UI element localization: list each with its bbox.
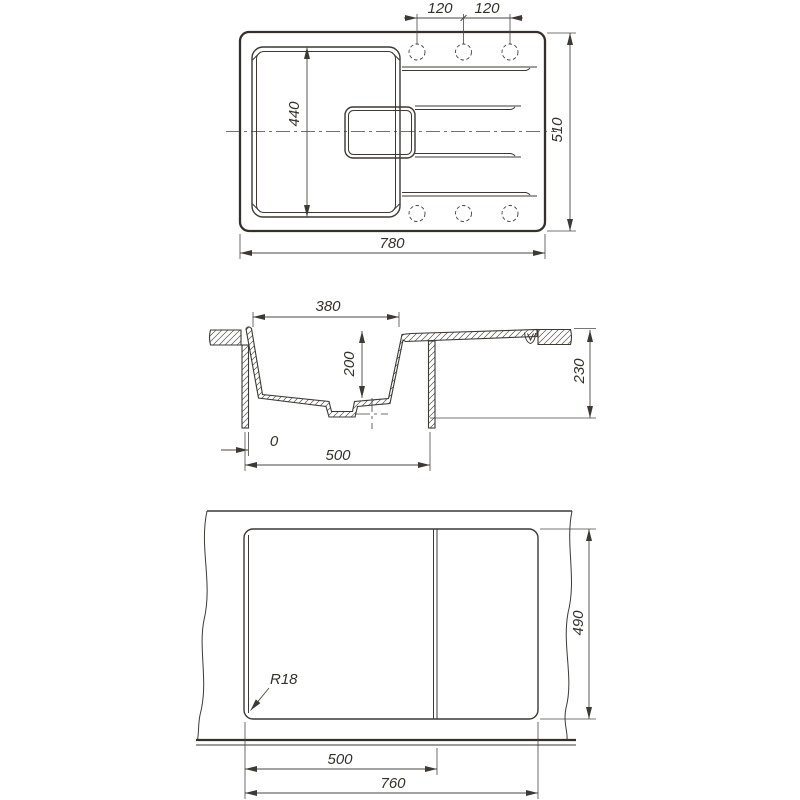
cutout-outline [244, 529, 538, 719]
bowl-rim [252, 47, 400, 217]
dim-total-height-label: 230 [571, 358, 588, 385]
dim-corner-radius: R18 [251, 671, 299, 711]
dim-edge-offset-label: 0 [270, 433, 279, 450]
sink-shell-section [246, 327, 537, 417]
dim-edge-offset: 0 [221, 432, 279, 456]
dim-left-section-width: 500 [245, 722, 437, 799]
dim-cutout-width-label: 760 [380, 775, 406, 792]
dim-bowl-width: 380 [253, 298, 399, 327]
dim-hole-spacing-left-label: 120 [427, 0, 453, 17]
countertop-left [210, 330, 242, 345]
dim-overall-width-label: 780 [379, 235, 405, 252]
dim-hole-spacing: 120 120 [404, 0, 523, 44]
dim-bowl-width-label: 380 [315, 298, 341, 315]
section-view: 380 200 230 0 500 [210, 298, 597, 471]
dim-cutout-depth-label: 490 [570, 610, 587, 636]
dim-bowl-depth-label: 200 [341, 351, 358, 378]
dim-bowl-depth: 200 [341, 331, 362, 398]
cabinet-wall-left [242, 345, 249, 428]
dim-left-section-width-label: 500 [327, 751, 353, 768]
dim-overall-depth-label: 510 [549, 117, 566, 143]
dim-overall-width: 780 [240, 234, 545, 259]
cabinet-wall-right [429, 341, 436, 428]
dim-cutout-width: 760 [245, 722, 538, 799]
break-line-left [198, 511, 208, 740]
dim-bowl-length: 440 [286, 47, 307, 217]
dim-bowl-length-label: 440 [286, 101, 303, 127]
drawing-canvas: 120 120 440 780 510 [0, 0, 800, 800]
drain-square [345, 107, 415, 158]
countertop-right [538, 330, 572, 345]
dim-overall-depth: 510 [547, 33, 576, 231]
dim-corner-radius-label: R18 [270, 671, 298, 688]
cutout-view: R18 490 500 760 [196, 511, 596, 799]
sink-drawing-svg: 120 120 440 780 510 [0, 0, 800, 800]
dim-cabinet-width-label: 500 [325, 447, 351, 464]
dim-hole-spacing-right-label: 120 [474, 0, 500, 17]
dim-cutout-depth: 490 [540, 529, 596, 719]
top-view: 120 120 440 780 510 [226, 0, 576, 259]
